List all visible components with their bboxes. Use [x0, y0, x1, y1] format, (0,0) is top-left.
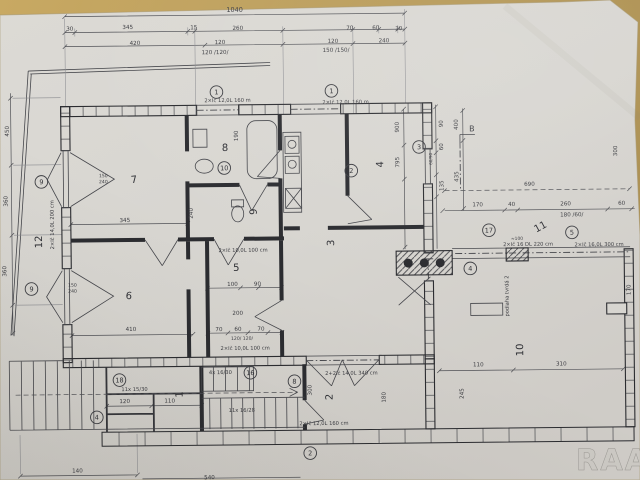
dim-label: 140 [72, 468, 83, 474]
lintel-note: 2×Ič 14,0L 200 cm [49, 200, 57, 249]
dim-label: 1040 [226, 6, 243, 14]
position-tag-number: 10 [220, 164, 228, 172]
dim-label: 60/90 [428, 152, 433, 164]
room-number: 5 [233, 263, 239, 274]
dim-label: 70 [346, 26, 354, 32]
dim-label: 60 [439, 143, 445, 151]
raa-watermark: RAA [576, 443, 640, 477]
room-number: 2 [325, 394, 336, 400]
position-tag-number: 2 [349, 167, 353, 175]
floor-plan-drawing: 10403034515260706030420120120240120 /120… [0, 0, 640, 480]
position-tag-number: 1 [214, 88, 218, 96]
dim-label: 260 [560, 201, 571, 207]
dim-label: 30 [66, 27, 74, 33]
dim-label: 190 [234, 130, 240, 141]
position-tag-number: 4 [95, 414, 99, 422]
dim-label: 110 [164, 399, 175, 405]
dim-label: 15 [190, 25, 198, 31]
dim-label: 70 [215, 327, 223, 333]
dim-label: 245 [460, 388, 466, 399]
dim-label: 240 [379, 38, 390, 44]
dim-label: 400 [454, 119, 460, 130]
dim-label: 240 [189, 208, 195, 219]
dim-label: 690 [524, 182, 535, 188]
dim-label: 540 [204, 475, 215, 480]
room-number: 10 [515, 343, 526, 356]
dim-label: 345 [122, 25, 133, 31]
dim-label: 30 [395, 26, 403, 32]
position-tag-number: 4 [468, 265, 472, 273]
position-tag-number: 8 [292, 378, 296, 386]
room-number: 3 [326, 240, 337, 246]
dim-label: 100 [227, 282, 238, 288]
dim-label: 795 [395, 156, 401, 167]
dim-label: 900 [395, 121, 401, 132]
room-number: 1 [175, 391, 186, 397]
position-tag-number: 18 [115, 376, 123, 384]
lintel-note: 2+2Ič 14,0L 340 cm [325, 369, 378, 377]
dim-label: 170 [472, 202, 483, 208]
dim-label: 410 [126, 327, 137, 333]
lintel-note: 2×Ič 12,0L 160 m [204, 97, 250, 104]
lintel-note: 11x 16/28 [229, 408, 255, 414]
dim-label: 60 [234, 327, 242, 333]
room-number: 9 [249, 208, 260, 214]
dim-label: 260 [232, 26, 243, 32]
room-number: 6 [125, 291, 132, 303]
dim-label: 180 [382, 392, 388, 403]
position-tag-number: 9 [39, 178, 43, 186]
lintel-note: 2×Ič 12,0L 160 m [322, 98, 368, 105]
position-tag-number: 2 [308, 449, 312, 457]
dim-label: 420 [130, 41, 141, 47]
dim-label: 120 [215, 40, 226, 46]
dim-label: 40 [508, 202, 516, 208]
lintel-note: 4x 16/30 [209, 370, 232, 376]
dim-label: 90 [254, 282, 262, 288]
dim-label: 240 [99, 179, 108, 185]
dim-label: 150 [68, 283, 77, 289]
lintel-note: 2×Ič 12,0L 160 cm [299, 420, 348, 428]
dim-label: 150 /150/ [323, 48, 350, 54]
room-number: 8 [222, 143, 228, 154]
lintel-note: 2×Ič 10,0L 100 cm [218, 247, 267, 255]
dim-label: 60 [618, 201, 626, 207]
lintel-note: B [469, 124, 475, 133]
dim-label: 360 [4, 195, 10, 206]
dim-label: 120/ 120/ [231, 336, 254, 342]
dim-label: 135 [439, 180, 445, 191]
room-number: 4 [375, 161, 386, 167]
lintel-note: 2×Ič 10,0L 100 cm [220, 345, 269, 353]
dim-label: 120 [119, 399, 130, 405]
dim-label: 200 [232, 311, 243, 317]
position-tag-number: 5 [570, 229, 574, 237]
dim-label: 310 [556, 361, 567, 367]
dim-label: 150 [99, 173, 108, 179]
dim-label: 90 [439, 120, 445, 128]
dim-label: 110 [473, 362, 484, 368]
dim-label: 120 [328, 39, 339, 45]
position-tag-number: 17 [485, 226, 493, 234]
dim-label: 60 [372, 25, 380, 31]
lintel-note: 2×Ič 16,0L 300 cm [574, 241, 623, 249]
position-tag-number: 3 [417, 143, 421, 151]
position-tag-number: 16 [246, 369, 254, 377]
room-number: 12 [34, 236, 45, 249]
position-tag-number: 1 [329, 87, 333, 95]
dim-label: 360 [2, 265, 8, 276]
dim-label: 240 [68, 289, 77, 295]
floor-plan-photo: 10403034515260706030420120120240120 /120… [0, 0, 640, 480]
lintel-note: podlaha tvrdá 2 [503, 275, 510, 316]
dim-label: 300 [613, 145, 619, 156]
dim-label: 450 [5, 125, 11, 136]
dim-label: 120 /120/ [202, 50, 229, 56]
dim-label: 345 [119, 218, 130, 224]
room-number: 7 [130, 175, 138, 187]
dim-label: 300 [308, 384, 314, 395]
position-tag-number: 9 [29, 285, 33, 293]
lintel-note: 2×Ič 16 DL 220 cm [503, 241, 553, 249]
lintel-note: 11x 15/30 [121, 387, 147, 393]
dim-label: 180 /60/ [560, 212, 584, 218]
dim-label: 170 [626, 284, 632, 295]
dim-label: 435 [454, 171, 460, 182]
dim-label: 70 [257, 327, 265, 333]
